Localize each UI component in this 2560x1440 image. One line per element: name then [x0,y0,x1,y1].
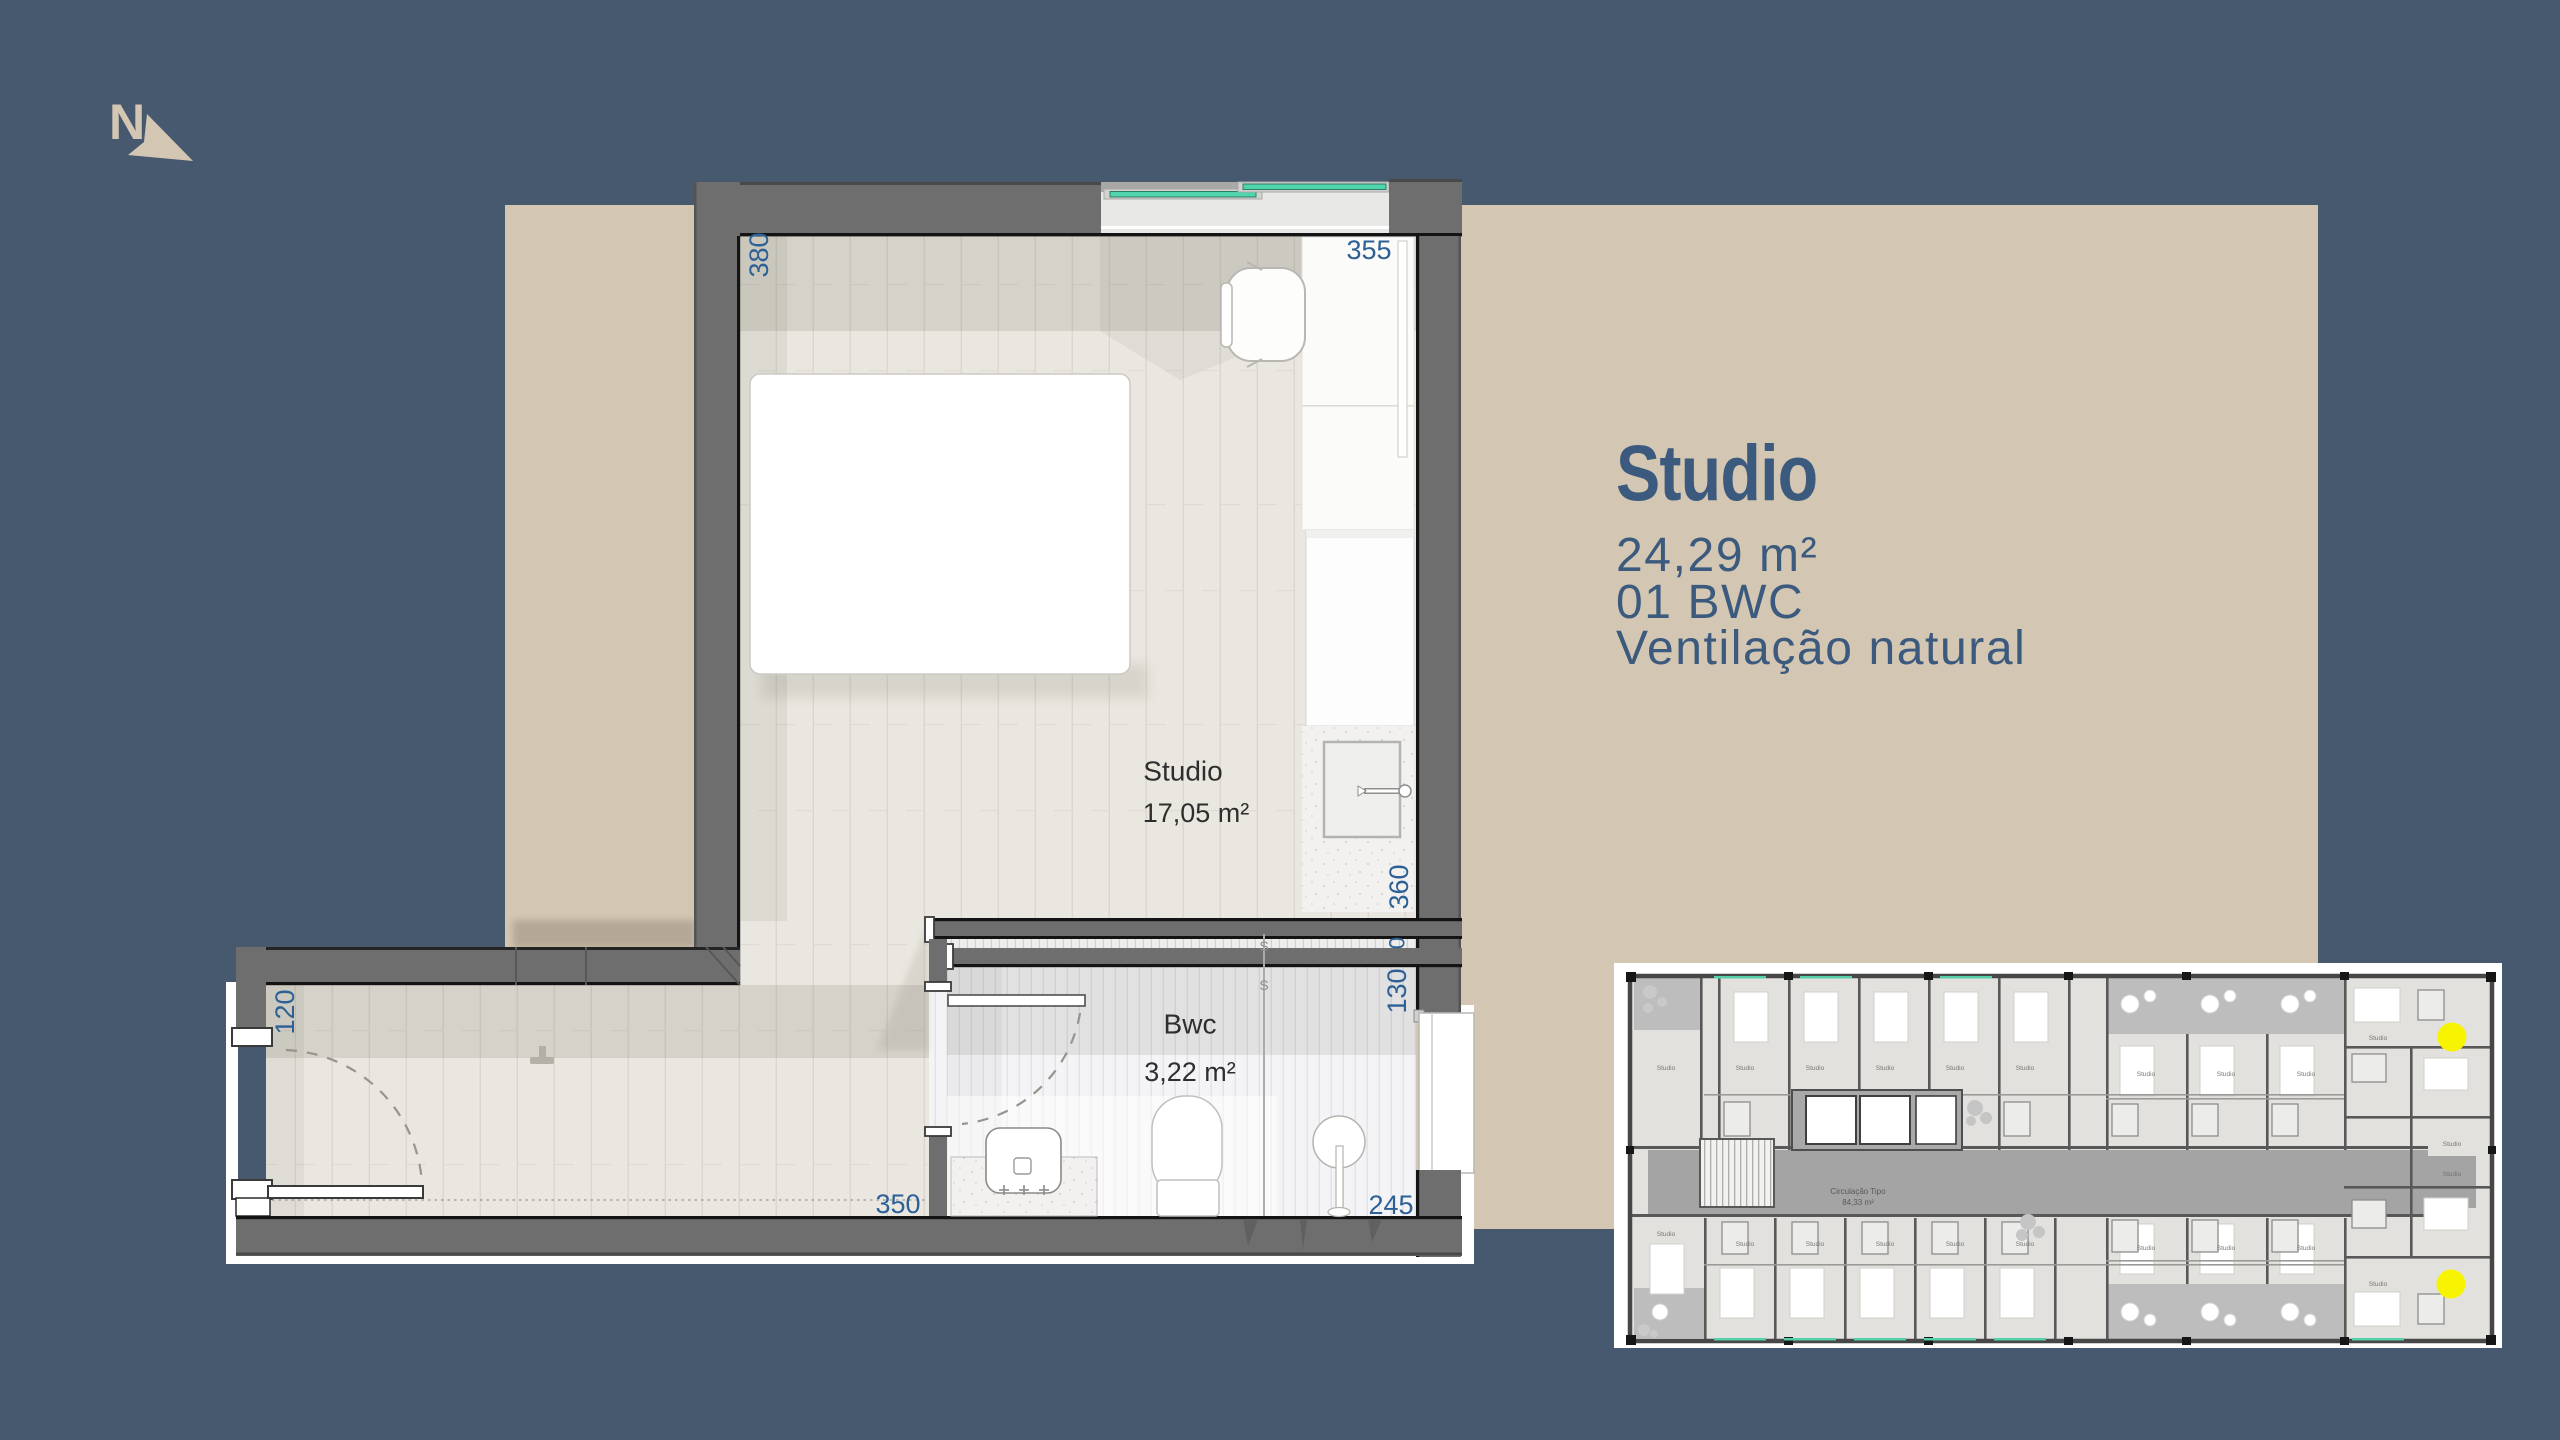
svg-text:Studio: Studio [1806,1241,1825,1248]
svg-text:Studio: Studio [2217,1071,2236,1078]
svg-text:84,33 m²: 84,33 m² [1842,1198,1874,1207]
svg-text:Studio: Studio [2297,1245,2316,1252]
svg-text:Studio: Studio [2137,1071,2156,1078]
svg-text:Studio: Studio [1736,1241,1755,1248]
svg-text:Studio: Studio [1876,1241,1895,1248]
svg-text:Studio: Studio [1657,1065,1676,1072]
svg-text:Studio: Studio [1876,1065,1895,1072]
svg-text:Studio: Studio [2217,1245,2236,1252]
svg-text:Studio: Studio [2369,1281,2388,1288]
svg-text:Studio: Studio [2297,1071,2316,1078]
svg-text:Studio: Studio [2137,1245,2156,1252]
svg-text:Studio: Studio [1657,1231,1676,1238]
svg-text:Studio: Studio [2443,1141,2462,1148]
svg-text:Studio: Studio [2016,1241,2035,1248]
svg-text:Studio: Studio [1806,1065,1825,1072]
svg-text:Studio: Studio [1946,1241,1965,1248]
svg-text:Studio: Studio [1946,1065,1965,1072]
svg-text:Studio: Studio [2016,1065,2035,1072]
svg-text:Studio: Studio [2369,1035,2388,1042]
svg-text:Circulação Tipo: Circulação Tipo [1830,1187,1886,1196]
svg-text:Studio: Studio [2443,1171,2462,1178]
svg-text:Studio: Studio [1736,1065,1755,1072]
